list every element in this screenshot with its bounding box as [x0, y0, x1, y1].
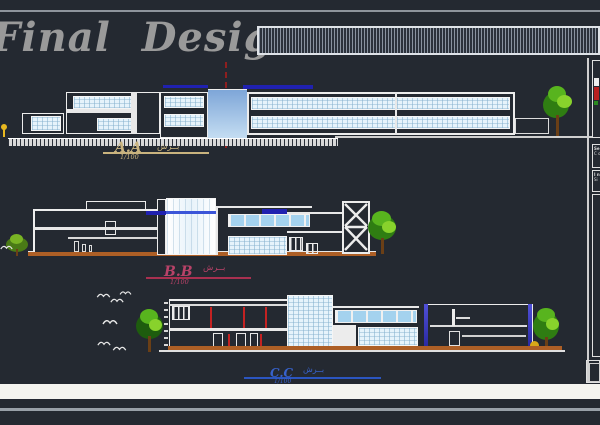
atrium-tower	[166, 198, 216, 255]
titleblock-field: I n Si	[592, 170, 600, 192]
section-bb-tag: بــرش	[203, 263, 225, 273]
ground-line	[335, 136, 600, 138]
multipane-window	[306, 243, 318, 254]
column	[89, 245, 92, 252]
section-aa-roof-strip	[243, 85, 313, 89]
roof-parapet	[86, 201, 146, 210]
section-aa-scale: 1/100	[120, 153, 139, 161]
wall-pier	[452, 309, 455, 326]
roof-strip-blue	[146, 211, 166, 215]
glazing-panel	[358, 327, 418, 346]
floor-slab	[66, 109, 136, 113]
door-frame	[213, 333, 223, 347]
multipane-window	[289, 237, 303, 251]
curtain-wall-band	[251, 97, 510, 110]
wall-block	[333, 325, 356, 347]
door-frame	[449, 331, 460, 346]
bird-icon	[96, 291, 111, 299]
section-cc-label-line	[244, 377, 381, 379]
section-bb-label-line	[146, 277, 251, 279]
tree-trunk	[148, 336, 151, 352]
bird-icon	[110, 296, 124, 304]
bird-icon	[102, 317, 118, 326]
door-frame	[236, 333, 246, 347]
tree-icon	[149, 319, 162, 331]
glazing-tower	[287, 295, 333, 348]
logo-icon	[594, 78, 599, 86]
section-aa-roof-strip	[163, 85, 208, 88]
section-aa-tag: بــرش	[157, 142, 179, 152]
bird-icon	[0, 243, 13, 251]
bird-icon	[97, 339, 111, 347]
red-column	[243, 307, 245, 328]
floor-slab	[68, 237, 160, 239]
tree-icon	[546, 318, 559, 330]
cad-sheet: Final Design A.A 1/100 بــرش	[0, 0, 600, 425]
interior-line	[462, 335, 526, 337]
titleblock-field: Se C o	[592, 144, 600, 168]
tree-trunk	[381, 238, 384, 254]
marker-stem	[3, 129, 5, 137]
red-column	[265, 307, 267, 328]
glazing-panel	[73, 96, 133, 109]
window-band	[228, 214, 310, 227]
building-outline	[33, 209, 160, 252]
glazing-panel	[31, 116, 61, 131]
glazing-panel	[228, 236, 287, 255]
step-line	[287, 212, 343, 214]
logo-icon	[594, 101, 598, 105]
tree-trunk	[16, 249, 18, 256]
wall-divider	[395, 92, 397, 135]
titleblock-corner-inner	[589, 363, 600, 382]
floor-slab	[169, 328, 287, 331]
column	[82, 244, 86, 252]
bird-icon	[119, 289, 132, 296]
titleblock-text: Si	[594, 177, 600, 182]
tree-trunk	[556, 115, 559, 137]
x-bracing-icon	[344, 203, 368, 252]
glass-tower	[208, 89, 247, 138]
roof-line	[333, 306, 419, 308]
column	[74, 241, 79, 252]
multipane-window	[172, 306, 190, 320]
glazing-panel	[164, 96, 204, 108]
window-band	[335, 310, 417, 323]
glazing-panel	[97, 118, 133, 131]
tree-icon	[382, 221, 396, 233]
section-bb-scale: 1/100	[170, 278, 189, 286]
ground-line	[159, 350, 565, 352]
roof-strip-blue	[166, 211, 216, 214]
tree-icon	[557, 95, 572, 108]
bottom-white-band	[0, 384, 600, 399]
floor-slab	[33, 227, 160, 230]
section-cc-tag: بــرش	[303, 365, 324, 374]
blue-edge	[424, 304, 428, 348]
curtain-wall-band	[251, 116, 510, 129]
titleblock-field	[592, 194, 600, 357]
door-frame	[105, 221, 116, 235]
bird-icon	[112, 344, 127, 352]
roof-line	[216, 206, 312, 208]
interior-line	[456, 317, 470, 319]
logo-icon	[594, 87, 599, 100]
hatched-bar	[257, 26, 600, 55]
door-frame	[250, 333, 258, 347]
red-column	[210, 307, 212, 328]
floor-slab	[430, 325, 527, 327]
titleblock-text: C o	[594, 151, 600, 156]
bottom-rule	[0, 408, 600, 411]
glazing-panel	[164, 114, 204, 127]
core-wall	[157, 199, 166, 255]
wall-edge	[216, 206, 218, 255]
step-line	[287, 231, 343, 233]
top-rule	[0, 10, 600, 12]
titleblock-border	[587, 58, 589, 383]
level-ticks	[164, 302, 168, 348]
low-wall	[515, 118, 549, 134]
wall-pier	[131, 92, 137, 134]
